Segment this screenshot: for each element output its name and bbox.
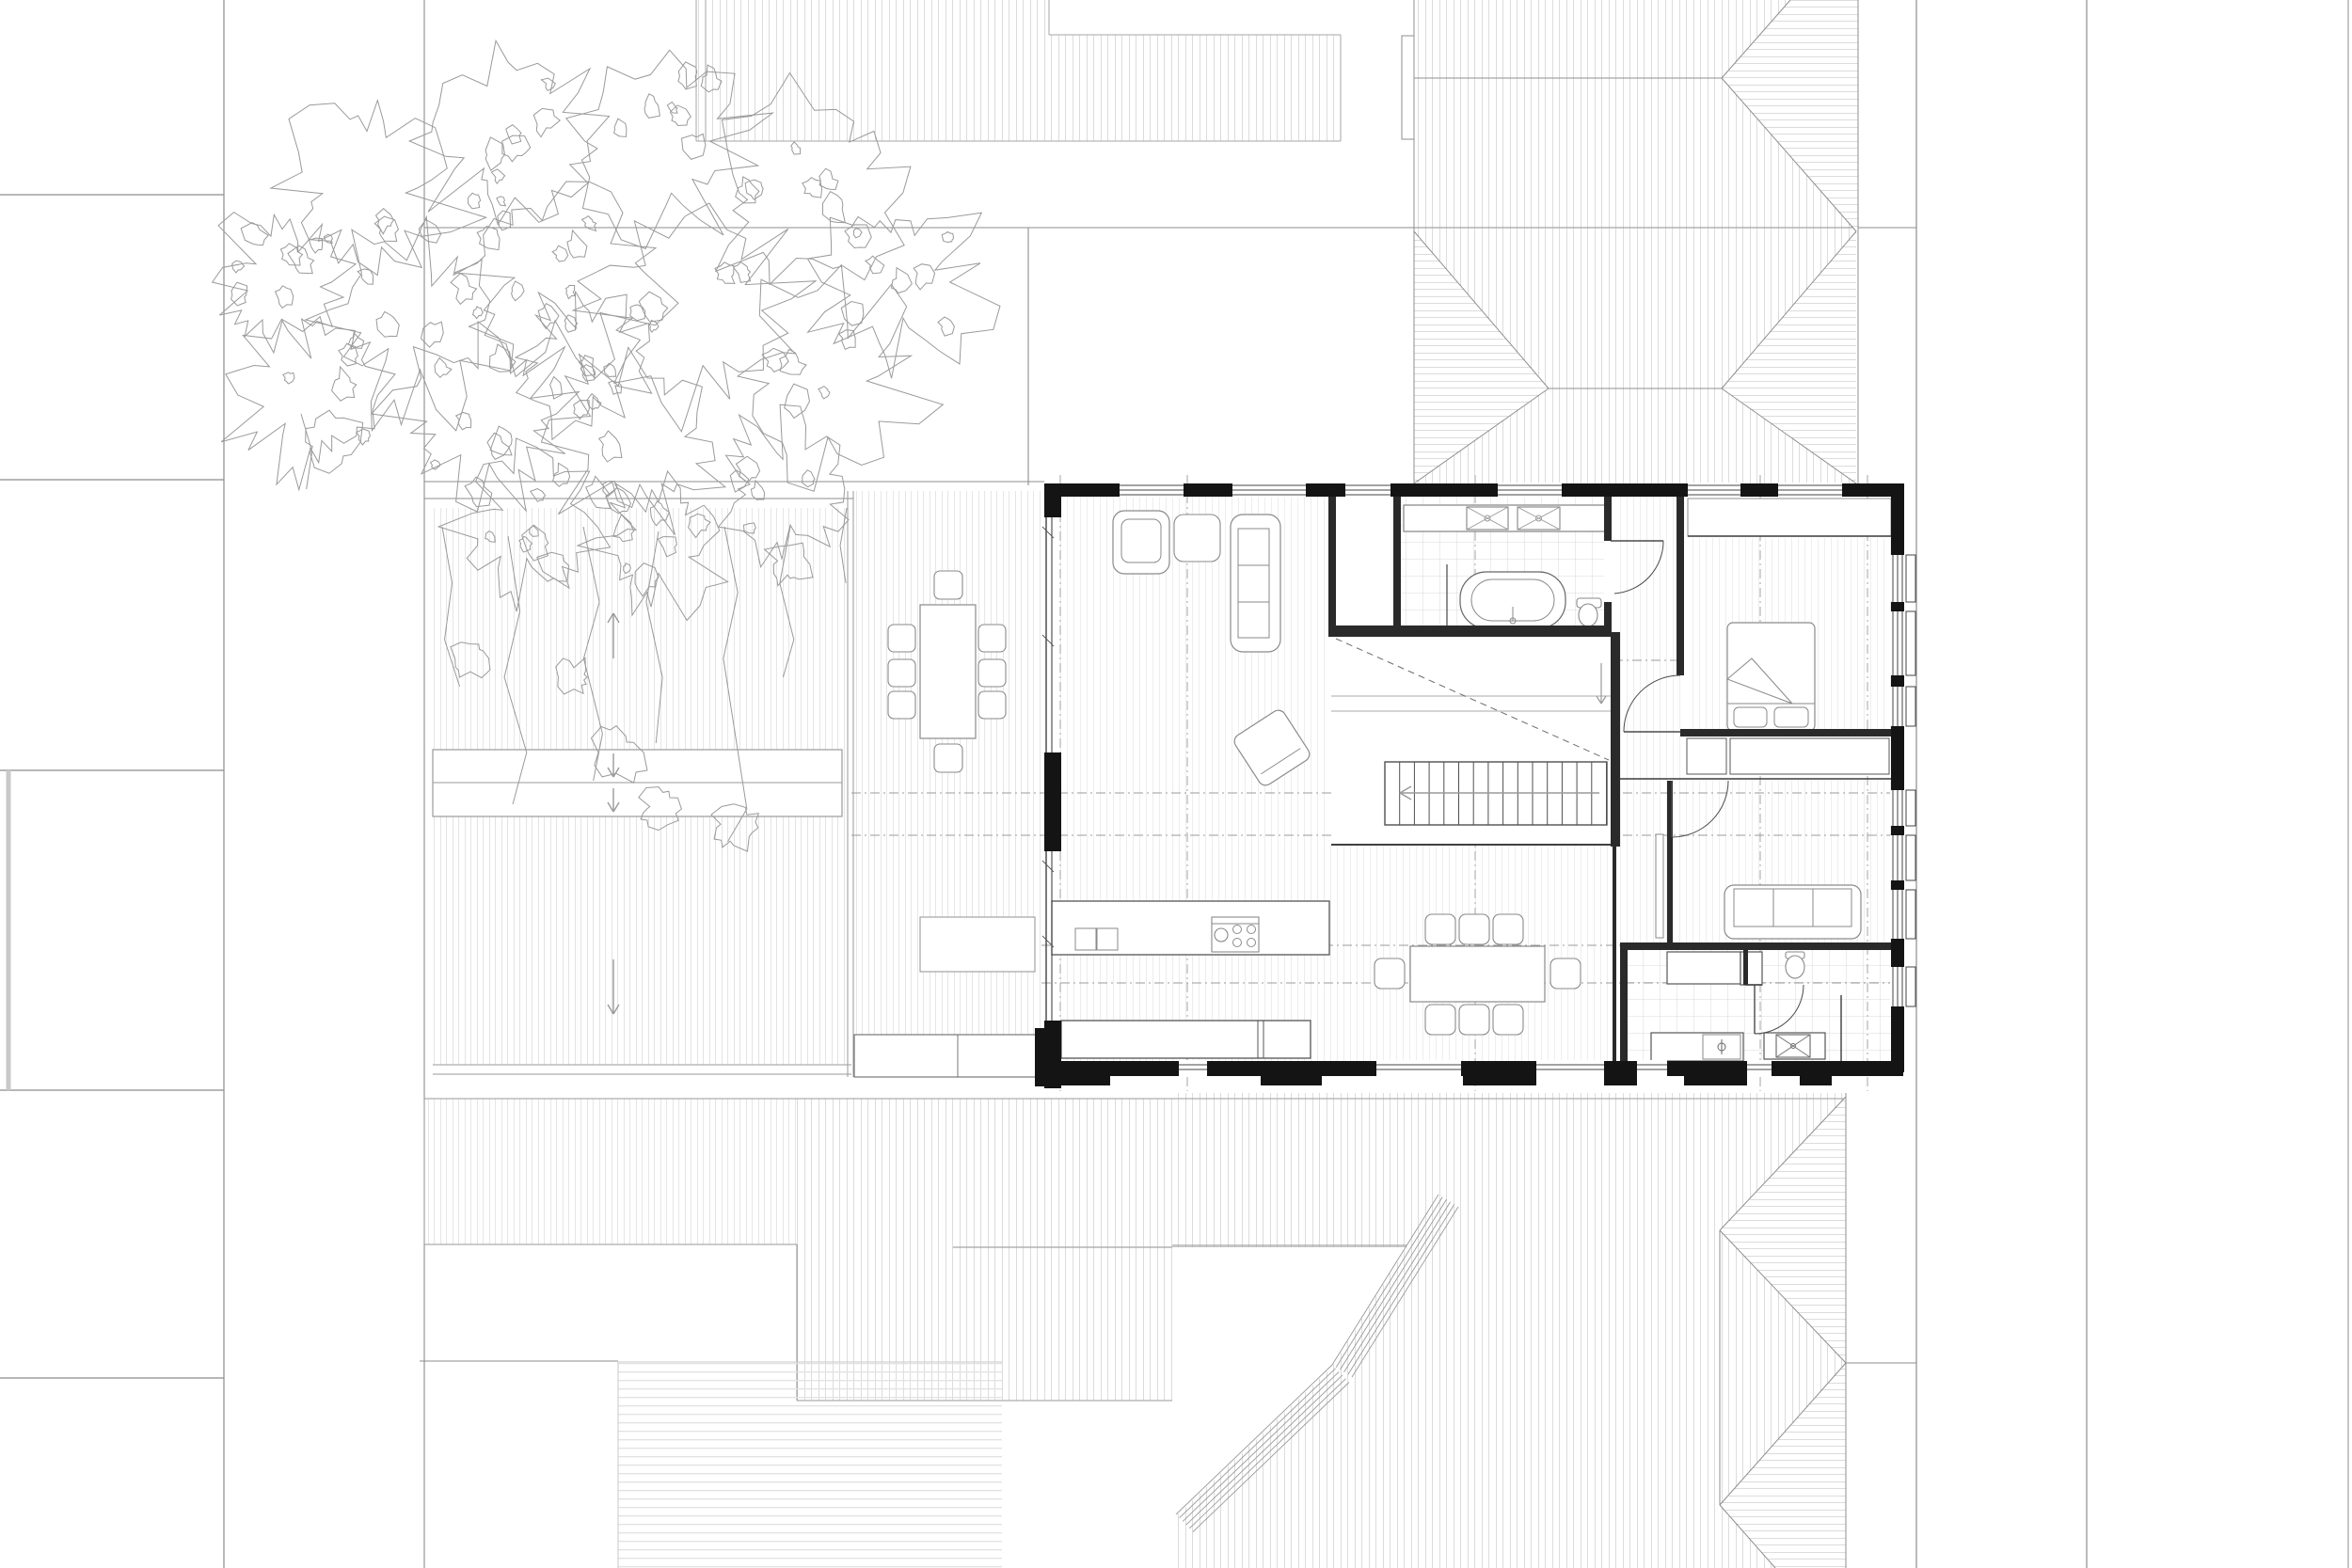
stair-and-void: [1331, 637, 1611, 845]
floor-plan-viewport: [0, 0, 2352, 1568]
site-floor-plan-drawing: [0, 0, 2352, 1568]
outdoor-dining-terrace: [853, 491, 1047, 1077]
neighbor-hip-roof-top: [1414, 0, 1858, 483]
